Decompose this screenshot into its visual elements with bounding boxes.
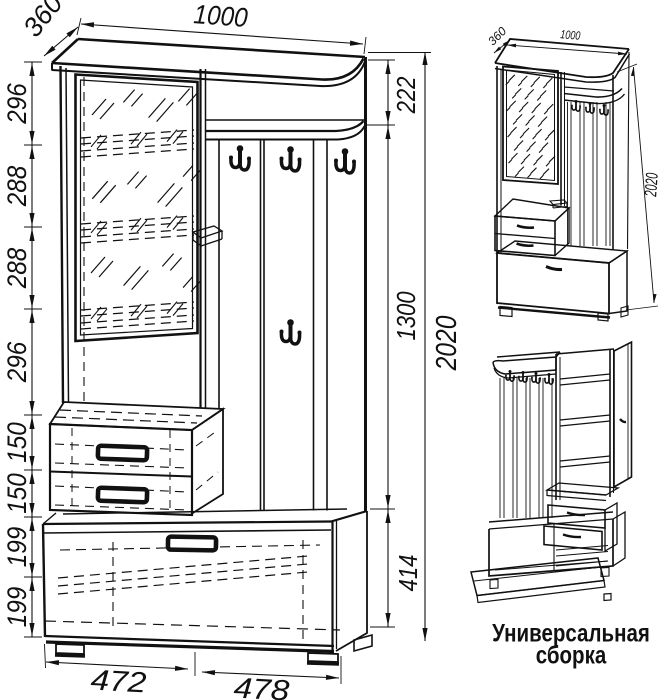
svg-text:199: 199 [3,587,32,628]
svg-text:2020: 2020 [642,172,663,198]
svg-text:222: 222 [392,76,421,114]
svg-text:472: 472 [90,664,147,699]
svg-text:360: 360 [17,0,68,42]
svg-text:288: 288 [3,247,32,289]
svg-text:296: 296 [3,83,32,125]
svg-text:478: 478 [233,672,291,700]
svg-text:288: 288 [3,165,32,207]
svg-text:414: 414 [394,555,423,592]
svg-text:1000: 1000 [193,0,250,33]
svg-text:сборка: сборка [536,641,607,669]
svg-text:150: 150 [3,473,32,514]
svg-text:1300: 1300 [392,291,421,341]
svg-text:150: 150 [3,422,32,463]
svg-text:296: 296 [3,341,32,383]
svg-text:1000: 1000 [560,28,581,43]
svg-text:2020: 2020 [430,316,462,372]
svg-text:199: 199 [3,527,32,568]
